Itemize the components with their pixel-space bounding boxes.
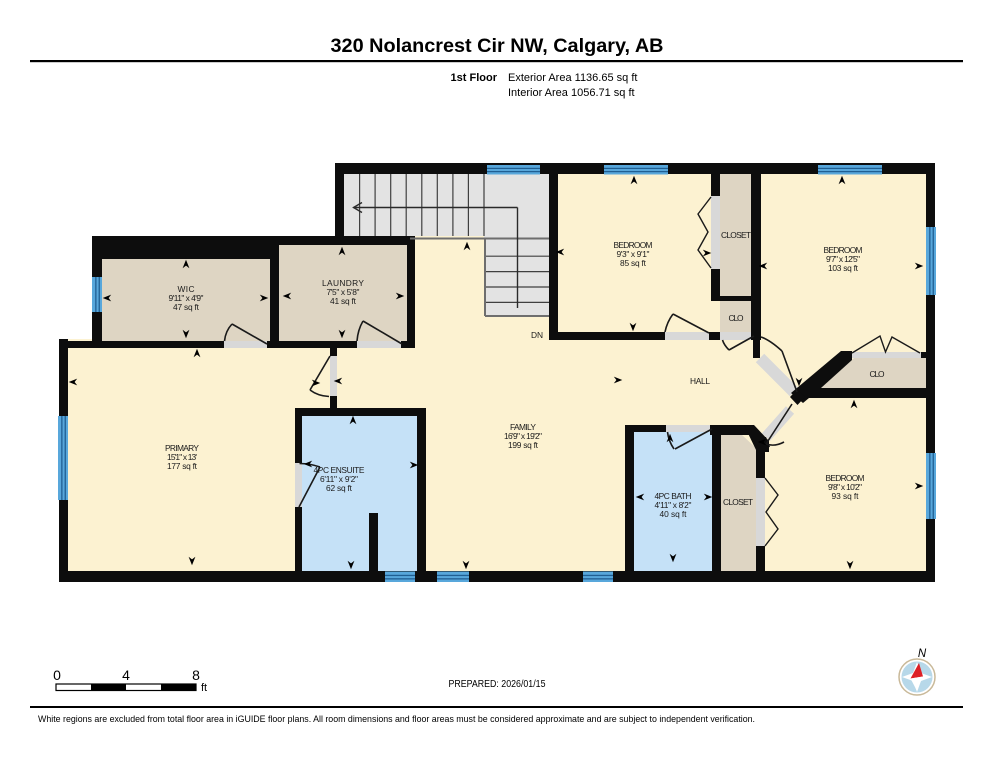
svg-text:199 sq ft: 199 sq ft (508, 440, 539, 450)
svg-text:CLOSET: CLOSET (723, 497, 753, 507)
svg-text:CLOSET: CLOSET (721, 230, 751, 240)
svg-text:0: 0 (53, 667, 61, 683)
svg-text:40 sq ft: 40 sq ft (660, 509, 688, 519)
svg-text:Interior Area 1056.71 sq ft: Interior Area 1056.71 sq ft (508, 87, 635, 99)
svg-text:HALL: HALL (690, 376, 710, 386)
svg-text:CLO: CLO (870, 369, 885, 379)
svg-text:8: 8 (192, 667, 200, 683)
svg-text:41 sq ft: 41 sq ft (330, 296, 357, 306)
svg-text:47 sq ft: 47 sq ft (173, 302, 200, 312)
svg-text:Exterior Area 1136.65 sq ft: Exterior Area 1136.65 sq ft (508, 72, 637, 84)
svg-text:CLO: CLO (729, 313, 744, 323)
svg-text:DN: DN (531, 330, 543, 340)
svg-text:62 sq ft: 62 sq ft (326, 483, 353, 493)
svg-text:177 sq ft: 177 sq ft (167, 461, 198, 471)
svg-text:93 sq ft: 93 sq ft (832, 491, 860, 501)
svg-text:1st Floor: 1st Floor (451, 72, 498, 84)
svg-text:N: N (918, 648, 927, 660)
svg-text:103 sq ft: 103 sq ft (828, 263, 859, 273)
svg-text:320 Nolancrest Cir NW, Calgary: 320 Nolancrest Cir NW, Calgary, AB (331, 36, 664, 57)
svg-text:4: 4 (122, 667, 130, 683)
svg-text:85 sq ft: 85 sq ft (620, 258, 647, 268)
svg-text:ft: ft (201, 682, 207, 694)
svg-text:PREPARED: 2026/01/15: PREPARED: 2026/01/15 (449, 679, 546, 690)
svg-text:White regions are excluded fro: White regions are excluded from total fl… (38, 714, 755, 724)
